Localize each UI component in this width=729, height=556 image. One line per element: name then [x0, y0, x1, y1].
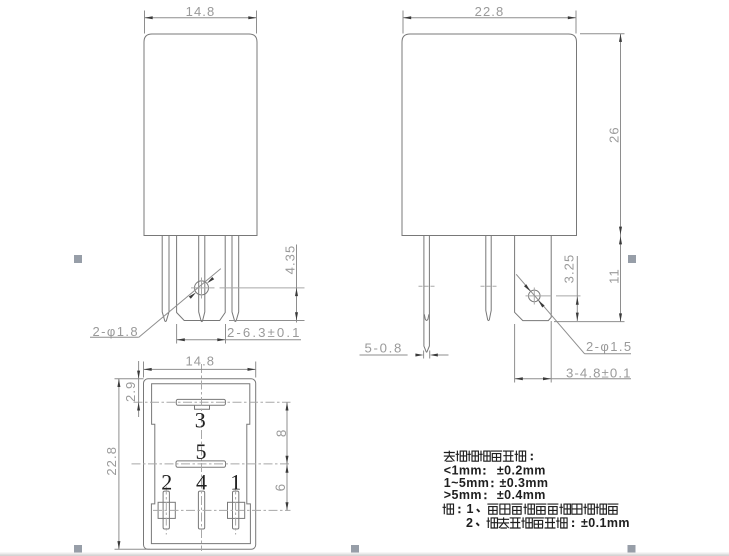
svg-text:2-φ1.8: 2-φ1.8 [93, 324, 139, 339]
svg-text:3-4.8±0.1: 3-4.8±0.1 [566, 365, 632, 380]
svg-text:14.8: 14.8 [185, 354, 215, 369]
svg-text:5: 5 [196, 439, 207, 464]
svg-text:5-0.8: 5-0.8 [365, 340, 404, 355]
svg-text:1: 1 [230, 469, 241, 494]
svg-text:22.8: 22.8 [104, 446, 119, 476]
svg-text:2: 2 [161, 469, 172, 494]
svg-text:1: 1 [467, 502, 474, 516]
svg-text:26: 26 [607, 126, 622, 143]
svg-text:6: 6 [273, 483, 288, 492]
svg-text:14.8: 14.8 [186, 4, 216, 19]
svg-text:11: 11 [607, 268, 622, 284]
svg-text:2.9: 2.9 [123, 381, 138, 402]
svg-text:3: 3 [195, 407, 206, 432]
svg-text:4.35: 4.35 [283, 245, 298, 275]
svg-text:2: 2 [466, 516, 473, 530]
svg-text:±0.1mm: ±0.1mm [581, 516, 630, 530]
svg-text:2-6.3±0.1: 2-6.3±0.1 [227, 325, 302, 340]
svg-text:±0.4mm: ±0.4mm [497, 488, 546, 502]
svg-text:>5mm: >5mm [444, 488, 482, 502]
svg-text:2-φ1.5: 2-φ1.5 [586, 339, 632, 354]
svg-text:3.25: 3.25 [562, 254, 577, 284]
svg-text:4: 4 [196, 469, 207, 494]
svg-text:22.8: 22.8 [475, 4, 505, 19]
svg-text:8: 8 [274, 428, 289, 437]
